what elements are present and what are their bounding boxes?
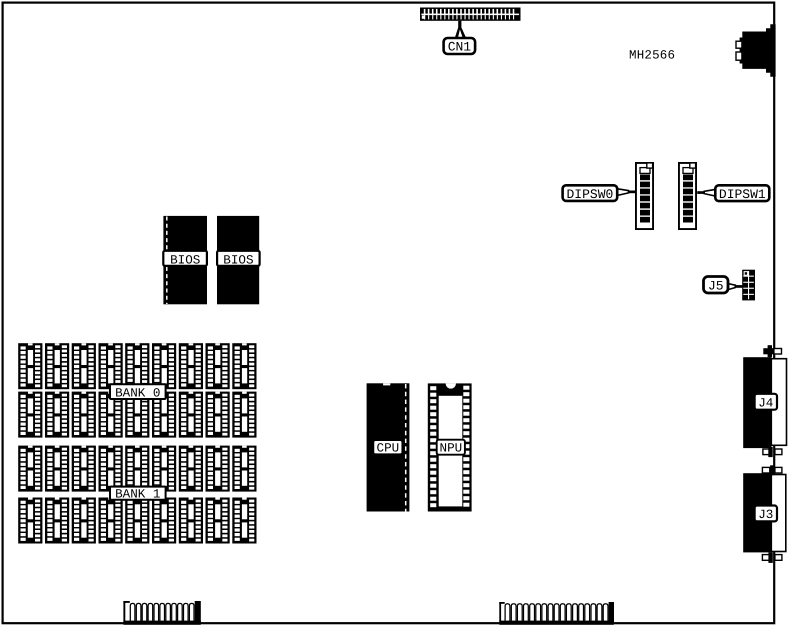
svg-text:DIPSW0: DIPSW0 — [566, 187, 613, 202]
svg-text:BANK 0: BANK 0 — [115, 386, 160, 400]
svg-text:J5: J5 — [708, 278, 724, 293]
svg-text:NPU: NPU — [440, 442, 463, 456]
svg-text:J4: J4 — [758, 396, 773, 410]
svg-text:BANK 1: BANK 1 — [115, 488, 160, 502]
svg-text:J3: J3 — [758, 508, 773, 522]
svg-text:DIPSW1: DIPSW1 — [719, 187, 766, 202]
svg-text:BIOS: BIOS — [170, 253, 200, 267]
svg-text:CPU: CPU — [377, 442, 400, 456]
svg-text:BIOS: BIOS — [223, 253, 253, 267]
svg-text:MH2566: MH2566 — [629, 49, 675, 63]
svg-text:CN1: CN1 — [448, 39, 472, 54]
